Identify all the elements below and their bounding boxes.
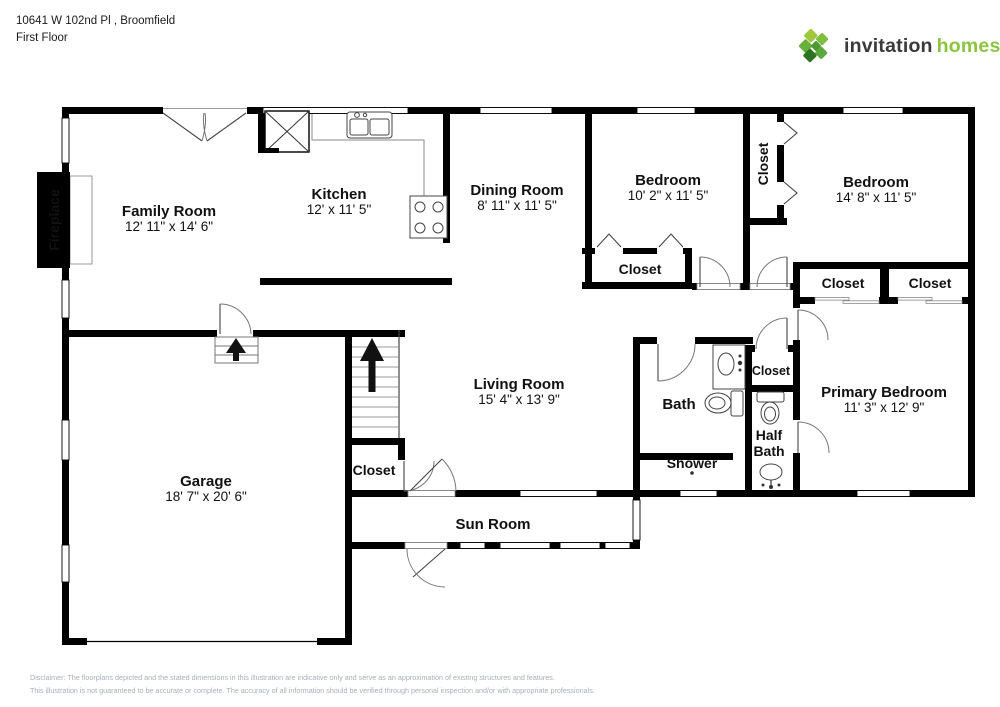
room-label-half-bath-1: Half [756,427,783,443]
kitchen-fixtures [264,111,447,238]
room-dims-primary-bedroom: 11' 3" x 12' 9" [844,400,925,415]
room-label-bedroom-1: Bedroom [635,172,701,189]
room-dims-bedroom-2: 14' 8" x 11' 5" [836,190,917,205]
room-label-half-bath-2: Bath [753,443,784,459]
bath-vanity-sink-icon [713,345,745,389]
closet-label-entry: Closet [353,462,396,478]
room-label-primary-bedroom: Primary Bedroom [821,384,947,401]
closet-label-vertical: Closet [755,142,771,185]
kitchen-sink-icon [347,112,392,138]
room-label-shower: Shower [667,455,718,471]
half-bath-toilet-icon [757,392,784,424]
bath-toilet-icon [705,391,743,416]
floorplan-page: 10641 W 102nd Pl , Broomfield First Floo… [0,0,1000,707]
room-dims-dining-room: 8' 11" x 11' 5" [477,198,557,213]
room-dims-bedroom-1: 10' 2" x 11' 5" [628,188,709,203]
fireplace: Fireplace [37,172,92,268]
disclaimer-line-2: This illustration is not guaranteed to b… [30,684,595,697]
room-label-bath: Bath [662,396,695,413]
room-dims-garage: 18' 7" x 20' 6" [165,489,247,504]
room-label-garage: Garage [180,473,232,490]
garage-steps [215,337,258,363]
disclaimer-line-1: Disclaimer: The floorplans depicted and … [30,671,595,684]
room-label-dining-room: Dining Room [470,182,563,199]
room-label-sun-room: Sun Room [456,516,531,533]
closet-label-primary-2: Closet [909,275,952,291]
room-label-living-room: Living Room [474,376,565,393]
room-label-family-room: Family Room [122,203,216,220]
room-dims-kitchen: 12' x 11' 5" [307,202,372,217]
pantry-icon [264,111,309,153]
stove-icon [410,196,447,238]
staircase [352,330,399,438]
closet-label-half-bath: Closet [752,364,791,378]
room-label-kitchen: Kitchen [311,186,366,203]
shower-drain-icon [690,471,694,475]
closet-label-primary-1: Closet [822,275,865,291]
room-dims-family-room: 12' 11" x 14' 6" [125,219,213,234]
room-dims-living-room: 15' 4" x 13' 9" [478,392,560,407]
fireplace-label: Fireplace [46,189,62,251]
disclaimer: Disclaimer: The floorplans depicted and … [30,671,595,697]
floor-plan-canvas: Fireplace [0,0,1000,707]
half-bath-sink-icon [760,464,782,489]
closet-label-bedroom-1: Closet [619,261,662,277]
room-label-bedroom-2: Bedroom [843,174,909,191]
